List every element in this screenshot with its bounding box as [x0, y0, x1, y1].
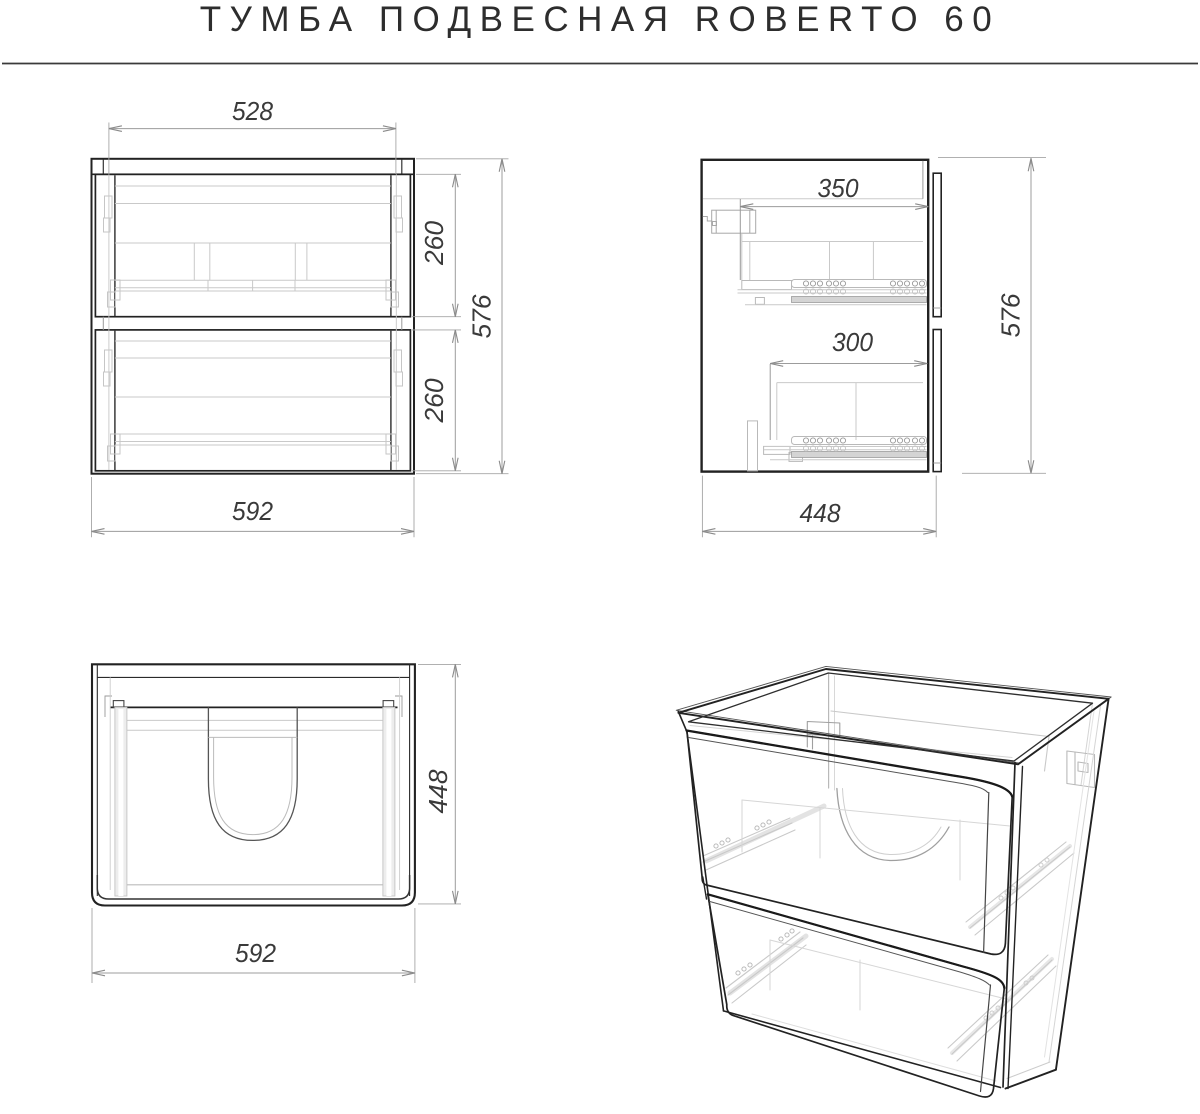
svg-text:260: 260 [419, 220, 449, 266]
svg-text:528: 528 [232, 96, 274, 126]
svg-text:576: 576 [467, 294, 497, 339]
svg-text:448: 448 [800, 498, 842, 528]
svg-text:448: 448 [423, 769, 453, 814]
svg-text:350: 350 [818, 173, 860, 203]
svg-text:592: 592 [232, 496, 274, 526]
svg-text:576: 576 [996, 293, 1026, 338]
svg-text:300: 300 [832, 327, 874, 357]
svg-text:592: 592 [235, 938, 277, 968]
svg-text:ТУМБА ПОДВЕСНАЯ ROBERTO 60: ТУМБА ПОДВЕСНАЯ ROBERTO 60 [200, 0, 1000, 39]
svg-text:260: 260 [419, 378, 449, 424]
